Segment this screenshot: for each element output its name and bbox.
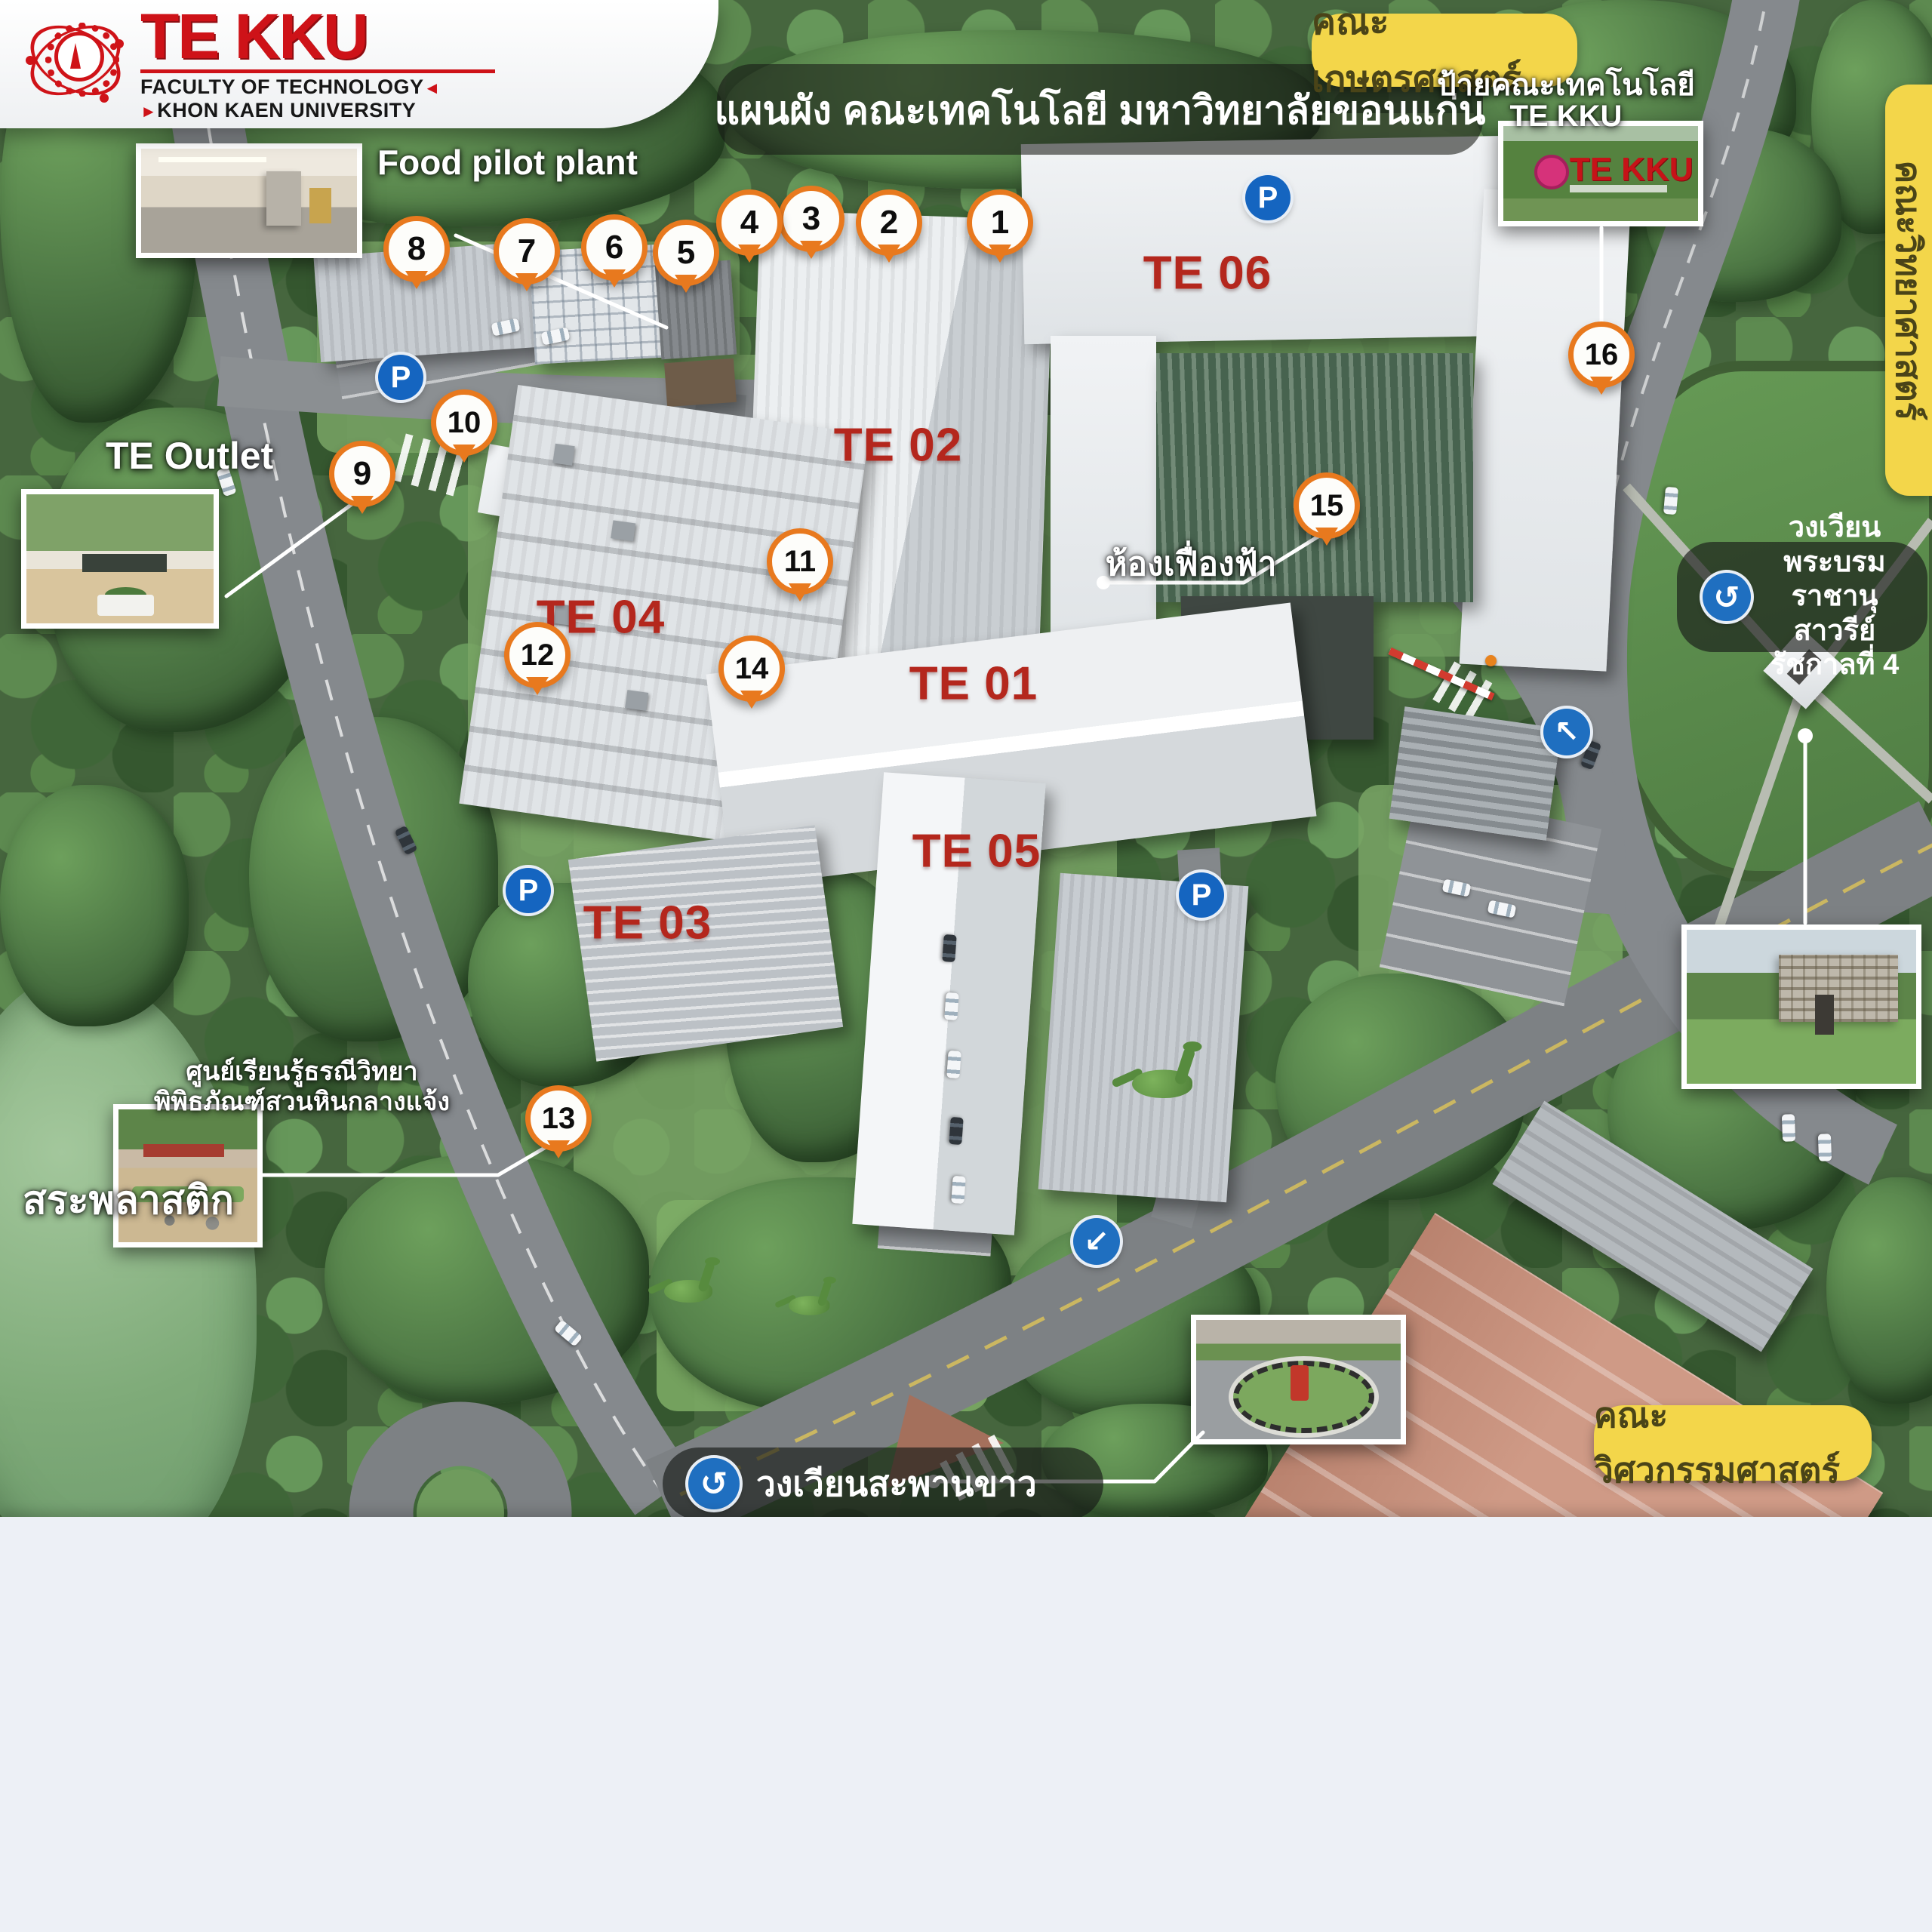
pin-number: 4 — [740, 204, 758, 241]
pin-number: 5 — [677, 234, 695, 272]
label-te-outlet: TE Outlet — [106, 434, 273, 478]
label-fuangfa-room: ห้องเฟื่องฟ้า — [1106, 537, 1277, 590]
map-pin-14: 14 — [718, 635, 785, 702]
map-pin-7: 7 — [494, 218, 560, 285]
legend-panel: รายละเอียดอาคาร TE 01ชั้น 1,2 ห้องเรียนค… — [0, 1517, 1932, 1932]
left-triangle-icon: ◄ — [424, 78, 441, 97]
pin-number: 10 — [448, 406, 481, 440]
pin-number: 2 — [880, 204, 898, 241]
parking-icon: P — [378, 355, 423, 400]
king-roundabout-line1: วงเวียนพระบรม — [1767, 511, 1902, 580]
parking-icon: P — [506, 868, 551, 913]
pin-number: 7 — [518, 232, 536, 270]
map-pin-4: 4 — [716, 189, 783, 256]
roundabout-icon: ↺ — [688, 1458, 740, 1509]
king-roundabout-line2: ราชานุสาวรีย์ รัชกาลที่ 4 — [1767, 580, 1902, 683]
pin-number: 3 — [802, 200, 820, 238]
white-bridge-roundabout-text: วงเวียนสะพานขาว — [756, 1464, 1037, 1503]
pin-number: 14 — [735, 652, 769, 686]
map-pin-16: 16 — [1568, 321, 1635, 388]
right-triangle-icon: ► — [140, 102, 157, 121]
map-pin-5: 5 — [653, 220, 719, 286]
logo-brand: TE KKU — [140, 5, 495, 68]
label-faculty-science: คณะวิทยาศาสตร์ — [1885, 85, 1932, 496]
label-plastic-pond: สระพลาสติก — [23, 1168, 234, 1231]
map-pin-8: 8 — [383, 216, 450, 282]
direction-arrow-icon: ↖ — [1543, 709, 1590, 755]
pin-number: 12 — [521, 638, 555, 672]
map-pin-13: 13 — [525, 1085, 592, 1152]
map-pin-1: 1 — [967, 189, 1033, 256]
pin-number: 11 — [784, 545, 816, 579]
pin-number: 8 — [408, 230, 426, 268]
map-pin-12: 12 — [504, 622, 571, 688]
logo-panel: TE KKU FACULTY OF TECHNOLOGY◄ ►KHON KAEN… — [0, 0, 718, 128]
map-pin-2: 2 — [856, 189, 922, 256]
label-food-pilot-plant: Food pilot plant — [377, 142, 638, 183]
map-pin-15: 15 — [1294, 472, 1360, 539]
pin-number: 9 — [353, 455, 371, 493]
label-white-bridge-roundabout: ↺ วงเวียนสะพานขาว — [663, 1447, 1103, 1520]
label-museum-line2: พิพิธภัณฑ์สวนหินกลางแจ้ง — [154, 1081, 450, 1121]
map-pin-3: 3 — [778, 186, 844, 252]
direction-arrow-icon: ↙ — [1073, 1218, 1120, 1265]
logo-line2: KHON KAEN UNIVERSITY — [157, 99, 416, 122]
pin-number: 1 — [991, 204, 1009, 241]
pin-number: 16 — [1585, 338, 1619, 372]
map-pin-11: 11 — [767, 528, 833, 595]
parking-icon: P — [1179, 872, 1224, 918]
te-kku-emblem-icon — [27, 12, 124, 109]
roundabout-icon: ↺ — [1703, 573, 1751, 621]
logo-line1: FACULTY OF TECHNOLOGY — [140, 75, 424, 98]
parking-icon: P — [1245, 175, 1291, 220]
pin-number: 15 — [1310, 489, 1344, 523]
pin-number: 13 — [542, 1102, 576, 1136]
pin-number: 6 — [605, 229, 623, 266]
map-pin-10: 10 — [431, 389, 497, 456]
label-king-roundabout: ↺ วงเวียนพระบรม ราชานุสาวรีย์ รัชกาลที่ … — [1677, 542, 1927, 652]
campus-map-poster: TE KKU TE 01TE 02TE 03TE 04TE 05TE 06 แผ… — [0, 0, 1932, 1932]
label-sign-line2: TE KKU — [1510, 100, 1623, 134]
label-faculty-engineering: คณะวิศวกรรมศาสตร์ — [1594, 1405, 1872, 1481]
map-pin-6: 6 — [581, 214, 648, 281]
map-pin-9: 9 — [329, 441, 395, 507]
